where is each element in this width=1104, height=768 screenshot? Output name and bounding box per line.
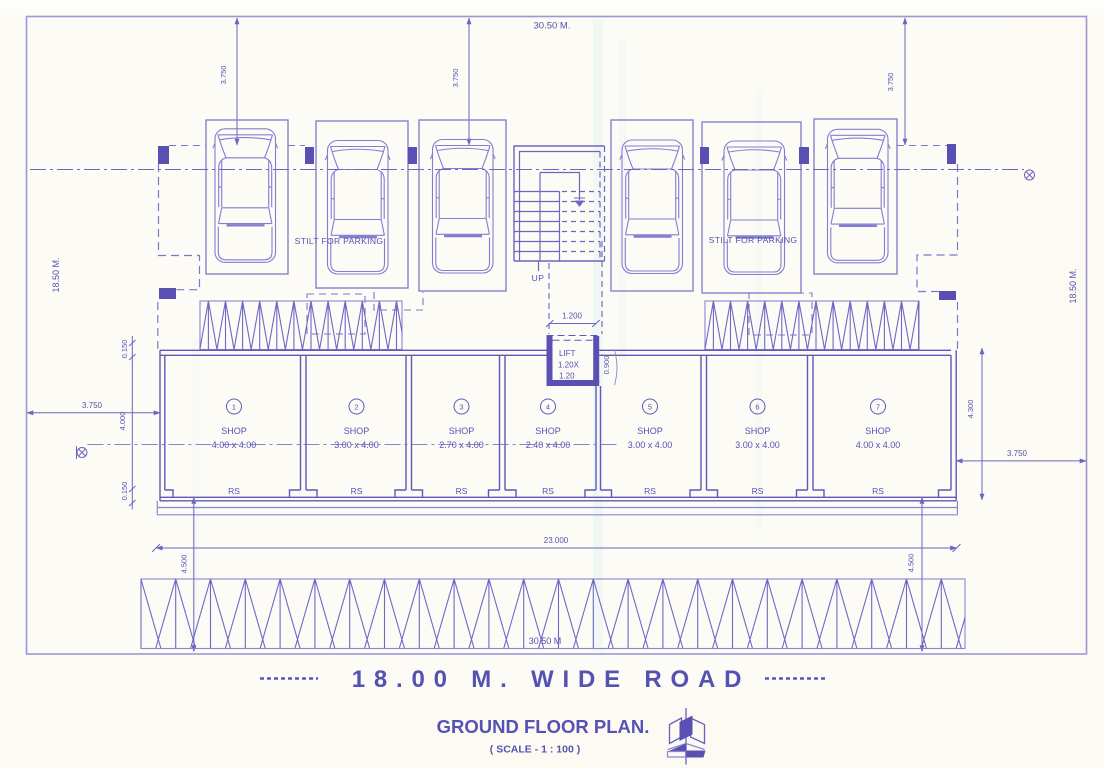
svg-text:2: 2 <box>354 403 358 412</box>
svg-text:SHOP: SHOP <box>449 426 475 436</box>
svg-text:4.300: 4.300 <box>966 400 975 419</box>
svg-text:3.00 x 4.00: 3.00 x 4.00 <box>628 440 673 450</box>
svg-text:6: 6 <box>755 403 759 412</box>
svg-text:0.900: 0.900 <box>602 356 611 375</box>
svg-text:4.500: 4.500 <box>907 554 916 573</box>
svg-text:STILT FOR PARKING: STILT FOR PARKING <box>709 235 798 245</box>
svg-text:4.00 x 4.00: 4.00 x 4.00 <box>856 440 901 450</box>
svg-text:3.750: 3.750 <box>219 66 228 85</box>
svg-text:RS: RS <box>456 486 468 496</box>
svg-text:3.750: 3.750 <box>1007 449 1028 458</box>
svg-text:30.50 M.: 30.50 M. <box>534 21 571 32</box>
svg-text:1.20X: 1.20X <box>558 361 580 370</box>
svg-text:STILT FOR PARKING: STILT FOR PARKING <box>295 236 384 246</box>
svg-text:3.750: 3.750 <box>451 69 460 88</box>
svg-text:18.00 M. WIDE ROAD: 18.00 M. WIDE ROAD <box>352 666 750 693</box>
svg-text:1.200: 1.200 <box>562 312 583 321</box>
svg-text:7: 7 <box>876 403 880 412</box>
svg-text:SHOP: SHOP <box>637 426 663 436</box>
svg-text:SHOP: SHOP <box>344 426 370 436</box>
svg-text:4.000: 4.000 <box>118 412 127 431</box>
svg-text:5: 5 <box>648 403 652 412</box>
svg-text:SHOP: SHOP <box>221 426 247 436</box>
svg-text:1.20: 1.20 <box>559 372 575 381</box>
svg-text:SHOP: SHOP <box>865 426 891 436</box>
svg-text:18.50 M.: 18.50 M. <box>1068 268 1078 303</box>
svg-text:RS: RS <box>228 486 240 496</box>
svg-text:3.750: 3.750 <box>82 401 103 410</box>
svg-text:RS: RS <box>752 486 764 496</box>
svg-text:SHOP: SHOP <box>535 426 561 436</box>
svg-text:0.150: 0.150 <box>120 482 129 501</box>
svg-text:3.750: 3.750 <box>886 73 895 92</box>
svg-text:( SCALE - 1 : 100 ): ( SCALE - 1 : 100 ) <box>490 744 580 756</box>
svg-text:RS: RS <box>644 486 656 496</box>
svg-text:4: 4 <box>546 403 550 412</box>
svg-text:23.000: 23.000 <box>544 536 569 545</box>
svg-text:4.500: 4.500 <box>180 555 189 574</box>
svg-text:RS: RS <box>872 486 884 496</box>
svg-text:GROUND FLOOR PLAN.: GROUND FLOOR PLAN. <box>437 716 650 737</box>
svg-text:18.50 M.: 18.50 M. <box>51 257 61 292</box>
svg-text:3.00 x 4.00: 3.00 x 4.00 <box>735 440 780 450</box>
svg-text:RS: RS <box>542 486 554 496</box>
svg-text:LIFT: LIFT <box>559 349 576 358</box>
svg-text:1: 1 <box>232 403 236 412</box>
svg-text:UP: UP <box>532 273 545 283</box>
svg-text:3: 3 <box>459 403 463 412</box>
svg-text:30.50 M: 30.50 M <box>529 636 562 646</box>
svg-text:0.150: 0.150 <box>120 340 129 359</box>
svg-text:RS: RS <box>351 486 363 496</box>
svg-text:SHOP: SHOP <box>745 426 771 436</box>
